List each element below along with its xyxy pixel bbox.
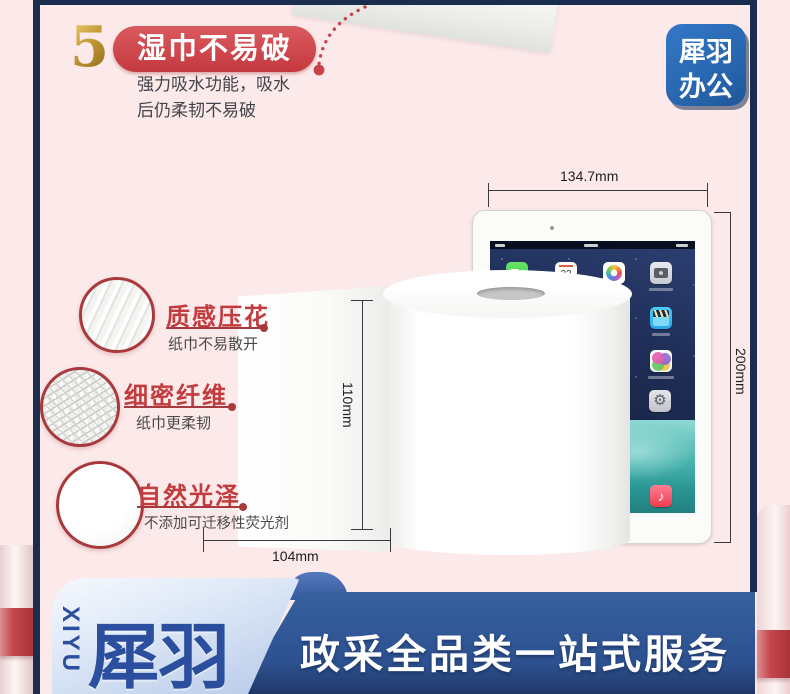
gloss-texture-image bbox=[56, 461, 144, 549]
left-pillar-red-band bbox=[0, 608, 33, 656]
feature-description-line2: 后仍柔韧不易破 bbox=[137, 98, 290, 124]
paper-roll-image bbox=[385, 293, 630, 555]
music-note-glyph: ♪ bbox=[658, 488, 665, 504]
settings-icon: ⚙ bbox=[649, 390, 671, 412]
feature-description: 强力吸水功能，吸水 后仍柔韧不易破 bbox=[137, 72, 290, 125]
roll-width-line bbox=[203, 540, 390, 541]
feature-description-line1: 强力吸水功能，吸水 bbox=[137, 72, 290, 98]
settings-gear-glyph: ⚙ bbox=[653, 392, 666, 409]
feature2-underline bbox=[124, 406, 232, 408]
step-number: 5 bbox=[70, 14, 109, 80]
footer-vertical-brand: XIYU bbox=[56, 606, 84, 690]
roll-width-tick-right bbox=[390, 528, 391, 552]
fiber-texture-image bbox=[40, 367, 120, 447]
feature1-desc: 纸巾不易散开 bbox=[168, 333, 258, 354]
roll-width-tick-left bbox=[203, 528, 204, 552]
tablet-status-bar bbox=[490, 241, 695, 249]
right-pillar-decoration bbox=[757, 505, 790, 694]
embossed-texture-image bbox=[79, 277, 155, 353]
tablet-height-tick-top bbox=[714, 212, 731, 213]
game-center-icon bbox=[650, 350, 672, 372]
feature2-desc: 纸巾更柔韧 bbox=[136, 412, 211, 433]
tablet-width-line bbox=[488, 190, 708, 191]
camera-label bbox=[649, 288, 673, 291]
tablet-height-label: 200mm bbox=[733, 348, 749, 395]
frame-right-border bbox=[750, 0, 757, 592]
tablet-height-line bbox=[730, 212, 731, 543]
tablet-camera-dot bbox=[550, 226, 554, 230]
left-pillar-decoration bbox=[0, 545, 33, 694]
footer-brand-logo: 犀羽 bbox=[88, 598, 228, 694]
tablet-width-tick-left bbox=[488, 183, 489, 207]
roll-height-tick-bottom bbox=[351, 529, 373, 530]
frame-left-border bbox=[33, 0, 40, 694]
feature3-underline bbox=[137, 506, 243, 508]
brand-logo-badge: 犀羽 办公 bbox=[666, 24, 746, 106]
game-center-label bbox=[648, 376, 674, 379]
roll-width-label: 104mm bbox=[272, 548, 319, 564]
videos-label bbox=[652, 333, 670, 336]
roll-height-label: 110mm bbox=[340, 382, 356, 428]
status-carrier-chip bbox=[495, 244, 505, 247]
roll-height-line bbox=[362, 300, 363, 530]
videos-icon bbox=[650, 307, 672, 329]
dotted-arc-icon bbox=[310, 4, 372, 82]
frame-top-border bbox=[33, 0, 757, 5]
paper-roll-core bbox=[477, 287, 545, 300]
roll-height-tick-top bbox=[351, 300, 373, 301]
music-icon: ♪ bbox=[650, 485, 672, 507]
status-battery-chip bbox=[676, 244, 688, 247]
feature-badge: 湿巾不易破 bbox=[113, 26, 316, 72]
brand-logo-line2: 办公 bbox=[666, 70, 746, 105]
right-pillar-red-band bbox=[757, 630, 790, 678]
tablet-width-tick-right bbox=[707, 183, 708, 207]
camera-icon bbox=[650, 262, 672, 284]
feature1-underline bbox=[166, 327, 264, 329]
status-clock-chip bbox=[584, 244, 598, 247]
tablet-height-tick-bottom bbox=[714, 542, 731, 543]
product-detail-image: 5 湿巾不易破 强力吸水功能，吸水 后仍柔韧不易破 犀羽 办公 质感压花 纸巾不… bbox=[0, 0, 790, 694]
brand-logo-line1: 犀羽 bbox=[666, 35, 746, 70]
footer-slogan: 政采全品类一站式服务 bbox=[300, 622, 730, 680]
feature3-desc: 不添加可迁移性荧光剂 bbox=[144, 512, 289, 533]
tablet-width-label: 134.7mm bbox=[560, 168, 618, 184]
